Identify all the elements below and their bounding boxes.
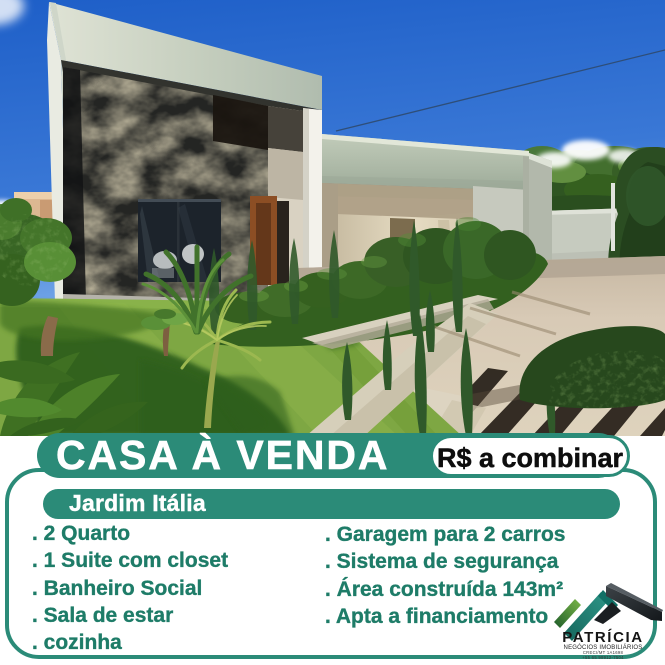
svg-text:PATRÍCIA: PATRÍCIA [562,629,643,646]
svg-text:+55 65 99912-7504: +55 65 99912-7504 [582,655,624,660]
